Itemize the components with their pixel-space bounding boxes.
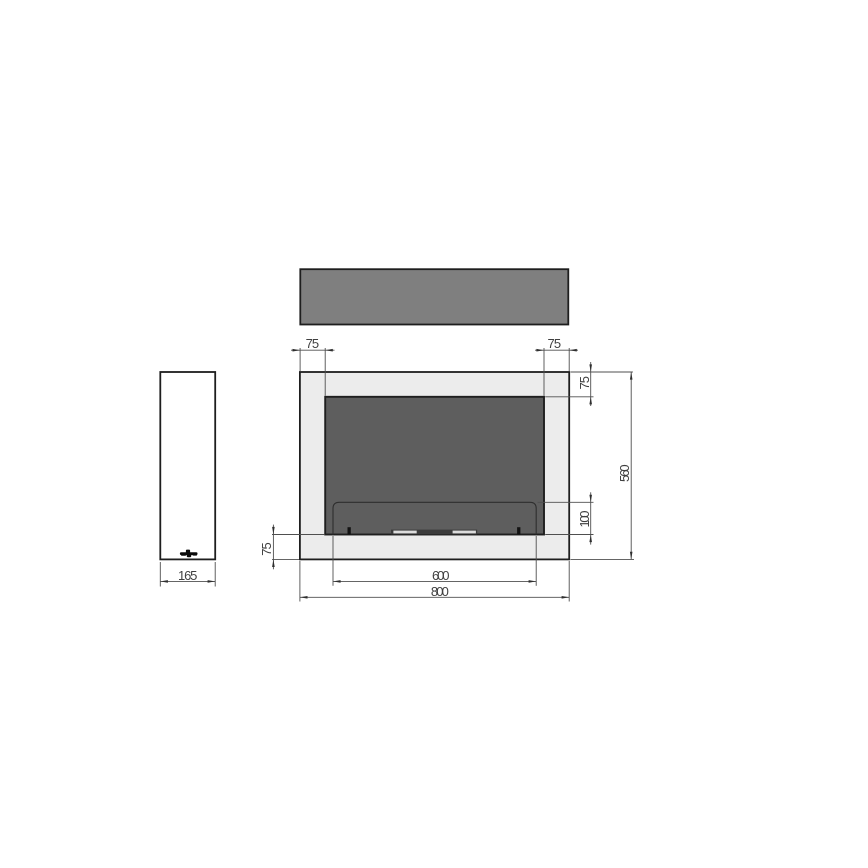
svg-text:75: 75 [259, 542, 274, 556]
svg-text:800: 800 [431, 584, 449, 599]
svg-text:560: 560 [617, 464, 632, 482]
svg-text:75: 75 [306, 336, 320, 351]
svg-text:75: 75 [577, 376, 592, 390]
svg-text:600: 600 [432, 568, 450, 583]
svg-text:75: 75 [548, 336, 562, 351]
svg-text:165: 165 [178, 568, 197, 583]
svg-text:100: 100 [577, 511, 592, 528]
